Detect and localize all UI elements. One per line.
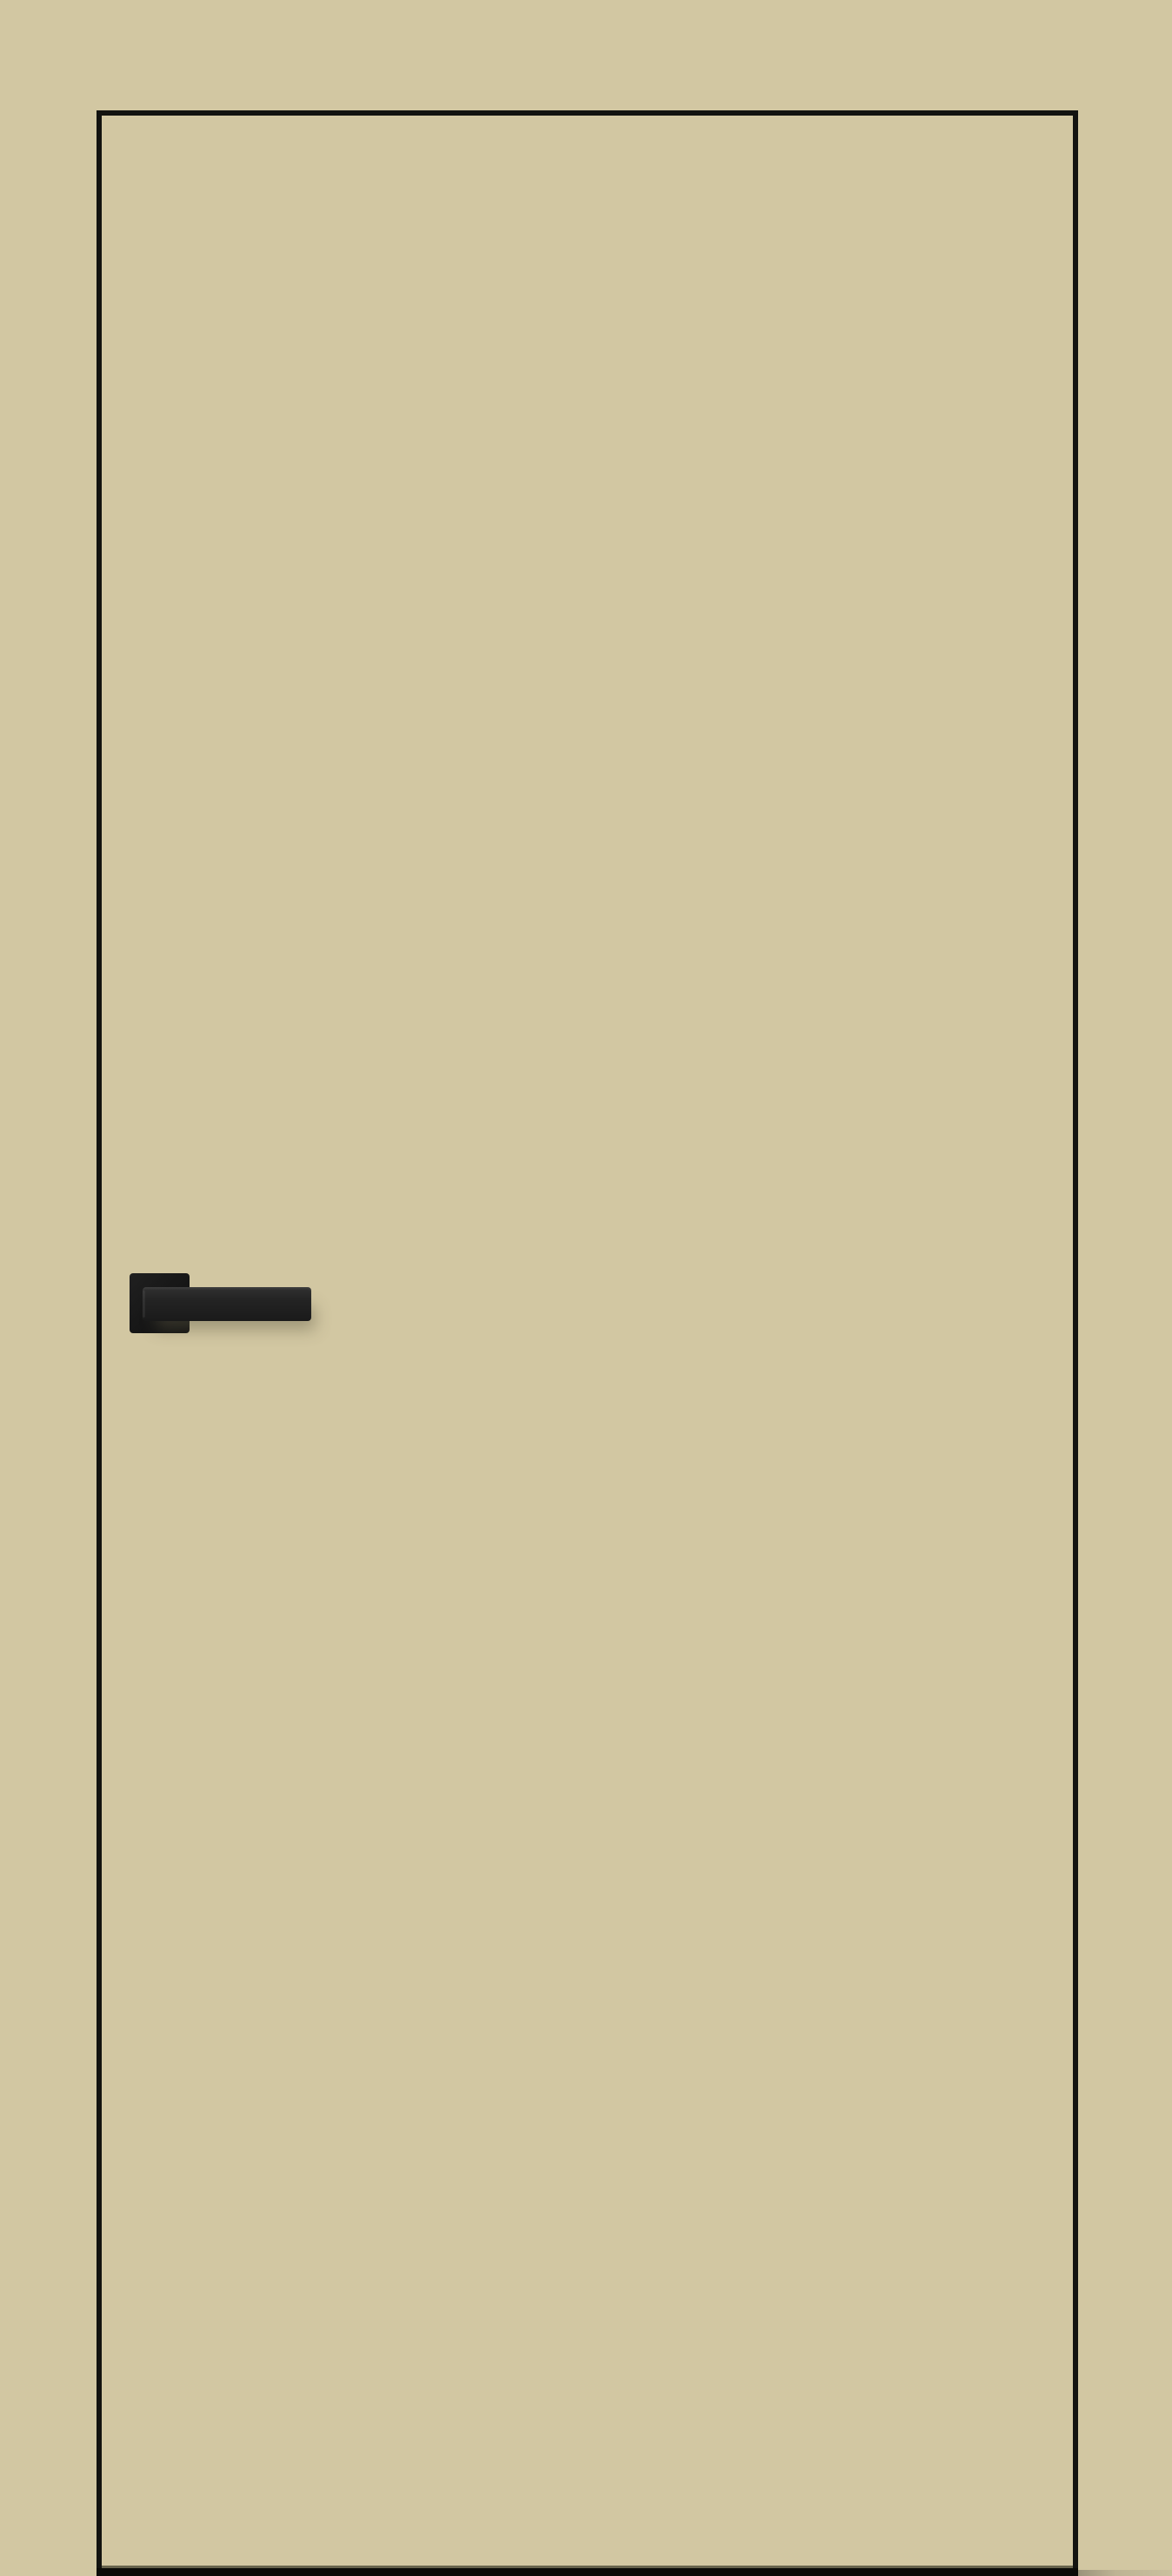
door-product-photo xyxy=(0,0,1172,2576)
floor-shadow-right xyxy=(1078,2570,1172,2576)
handle-lever-icon xyxy=(143,1287,311,1321)
door-leaf xyxy=(102,116,1073,2566)
floor-gap-shadow xyxy=(97,2568,1078,2576)
